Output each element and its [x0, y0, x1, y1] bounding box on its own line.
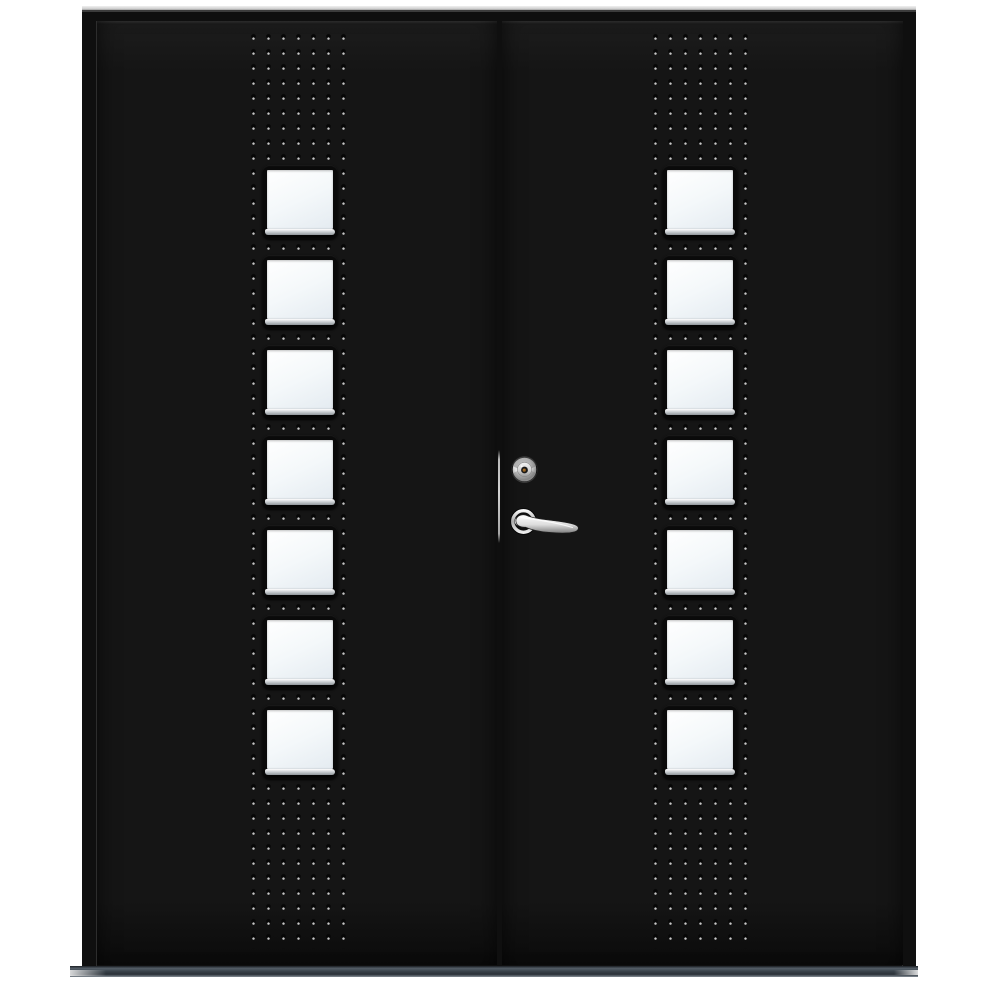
window-glass — [267, 350, 333, 409]
window-pane — [262, 525, 338, 599]
window-pane — [262, 615, 338, 689]
window-glass — [267, 710, 333, 769]
window-sill — [665, 229, 735, 235]
window-sill — [665, 769, 735, 775]
window-glass — [267, 260, 333, 319]
window-glass — [667, 440, 733, 499]
window-glass — [267, 440, 333, 499]
window-glass — [667, 620, 733, 679]
window-pane — [262, 255, 338, 329]
window-sill — [665, 679, 735, 685]
window-pane — [662, 705, 738, 779]
door-leaf-left — [97, 21, 497, 965]
window-glass — [267, 620, 333, 679]
frame-top-shadowline — [82, 10, 916, 12]
lock-cylinder-icon — [511, 456, 538, 483]
window-sill — [265, 229, 335, 235]
window-pane — [262, 165, 338, 239]
window-glass — [667, 530, 733, 589]
window-pane — [662, 525, 738, 599]
window-pane — [262, 345, 338, 419]
window-pane — [662, 345, 738, 419]
threshold-sill — [70, 966, 918, 977]
window-sill — [265, 499, 335, 505]
window-pane — [662, 615, 738, 689]
door-hardware — [500, 445, 600, 545]
window-glass — [667, 350, 733, 409]
window-sill — [265, 409, 335, 415]
window-pane — [662, 255, 738, 329]
product-photo-canvas — [0, 0, 1000, 1000]
window-glass — [667, 260, 733, 319]
window-glass — [267, 530, 333, 589]
window-sill — [265, 589, 335, 595]
lever-handle-icon — [510, 508, 578, 534]
window-pane — [662, 435, 738, 509]
window-sill — [265, 769, 335, 775]
window-sill — [665, 499, 735, 505]
window-sill — [665, 409, 735, 415]
window-pane — [662, 165, 738, 239]
window-glass — [267, 170, 333, 229]
window-pane — [262, 435, 338, 509]
window-glass — [667, 170, 733, 229]
window-column-left — [97, 21, 497, 965]
window-sill — [665, 319, 735, 325]
window-pane — [262, 705, 338, 779]
window-sill — [265, 319, 335, 325]
window-sill — [265, 679, 335, 685]
window-glass — [667, 710, 733, 769]
window-sill — [665, 589, 735, 595]
